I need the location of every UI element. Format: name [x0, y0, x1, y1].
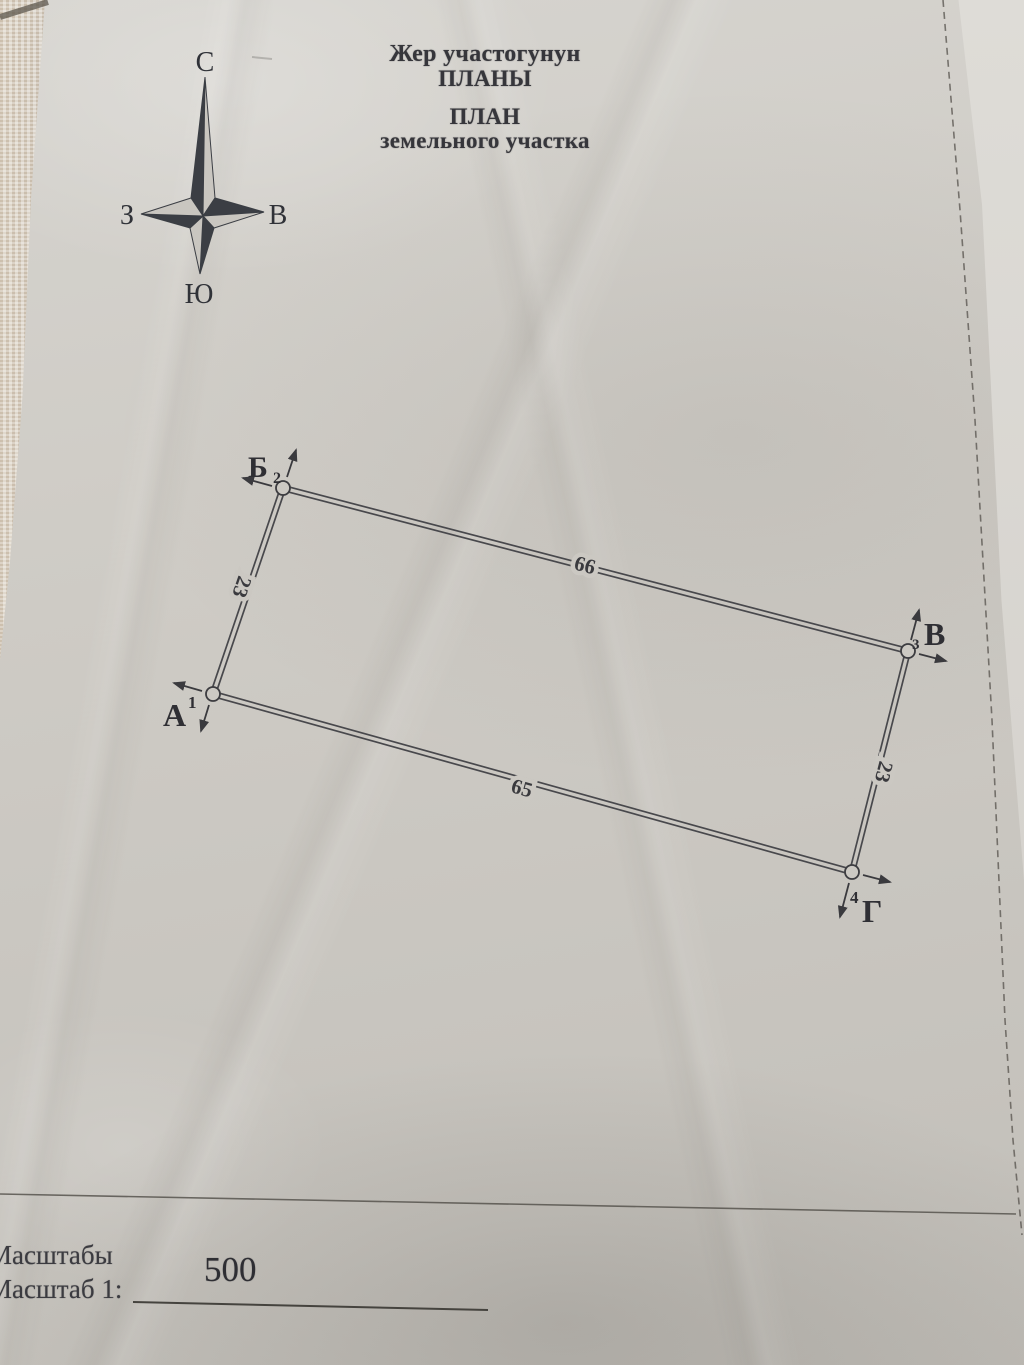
corner-number-b: 2	[273, 470, 281, 487]
side-dimension-left: 23	[227, 573, 256, 601]
section-divider-line	[0, 1194, 1016, 1214]
side-dimension-right: 23	[870, 759, 898, 785]
corner-label-a: А	[163, 697, 186, 733]
scale-value: 500	[204, 1250, 257, 1290]
corner-label-v: В	[924, 616, 945, 652]
corner-label-b: Б	[248, 451, 268, 484]
corner-label-g: Г	[862, 893, 882, 929]
side-dimension-top: 66	[572, 551, 598, 580]
document-photo: Жер участогунун ПЛАНЫ ПЛАН земельного уч…	[0, 0, 1024, 1365]
corner-number-v: 3	[912, 637, 920, 653]
corner-number-g: 4	[850, 888, 859, 907]
page-edge-dashed-line	[943, 0, 1022, 1235]
corner-number-a: 1	[188, 693, 197, 712]
corner-marker-g	[845, 865, 859, 879]
scale-underline	[133, 1302, 488, 1310]
corner-marker-a	[206, 687, 220, 701]
scale-label-line1: Масштабы	[0, 1240, 113, 1271]
smudge-mark	[252, 57, 272, 59]
plot-diagram: 66 65 23 23 Б 2 В 3 А 1 Г 4	[0, 0, 1024, 1365]
side-dimension-bottom: 65	[509, 774, 536, 803]
corner-extension-arrows	[174, 450, 946, 917]
scale-label-line2: Масштаб 1:	[0, 1274, 122, 1305]
parcel-boundary-lines	[211, 486, 911, 875]
top-left-photo-edge	[0, 2, 48, 17]
